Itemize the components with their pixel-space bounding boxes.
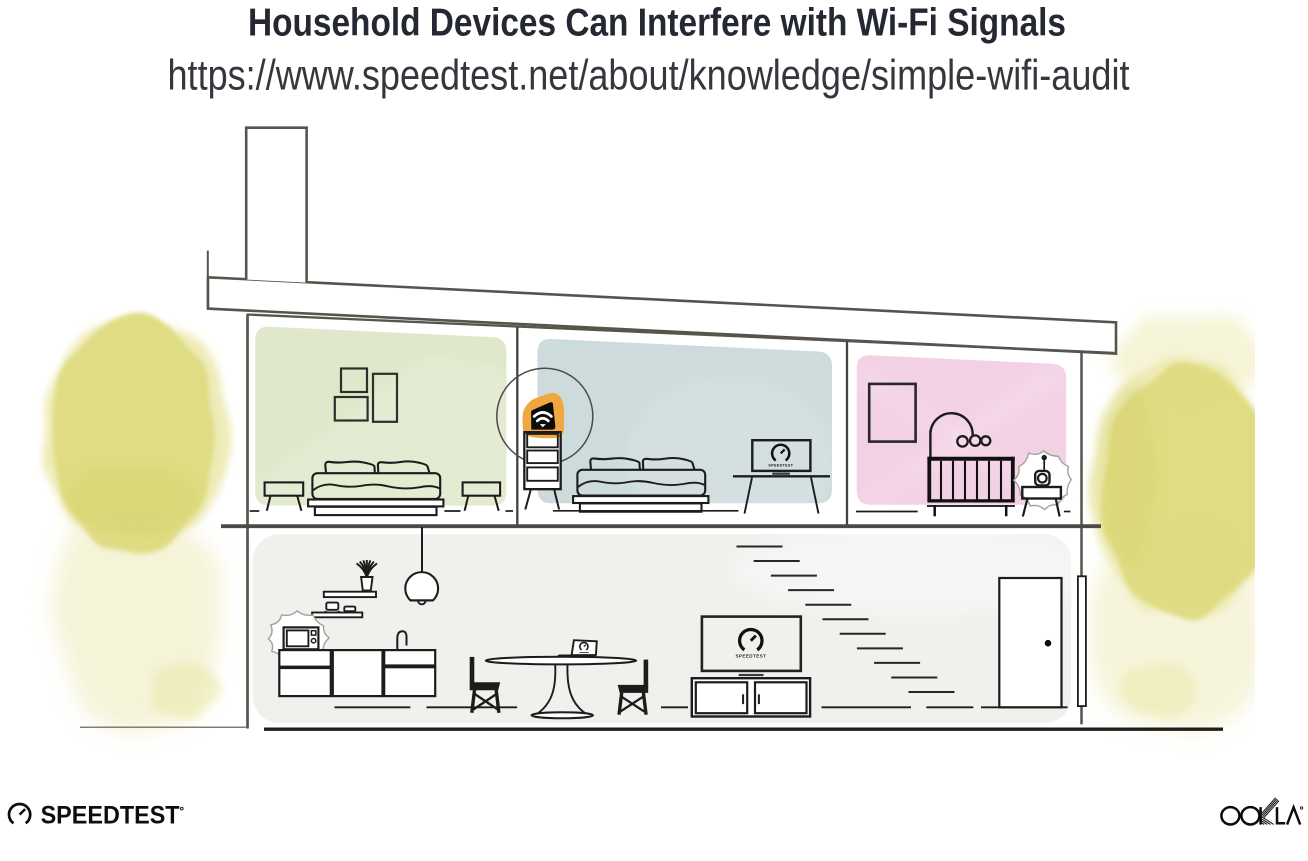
- svg-text:SPEEDTEST: SPEEDTEST: [768, 464, 793, 468]
- svg-text:https://www.speedtest.net/abou: https://www.speedtest.net/about/knowledg…: [168, 52, 1130, 100]
- svg-text:SPEEDTEST: SPEEDTEST: [735, 653, 766, 658]
- svg-text:SPEEDTEST: SPEEDTEST: [41, 803, 180, 830]
- svg-text:Household Devices Can Interfer: Household Devices Can Interfere with Wi-…: [248, 2, 1066, 45]
